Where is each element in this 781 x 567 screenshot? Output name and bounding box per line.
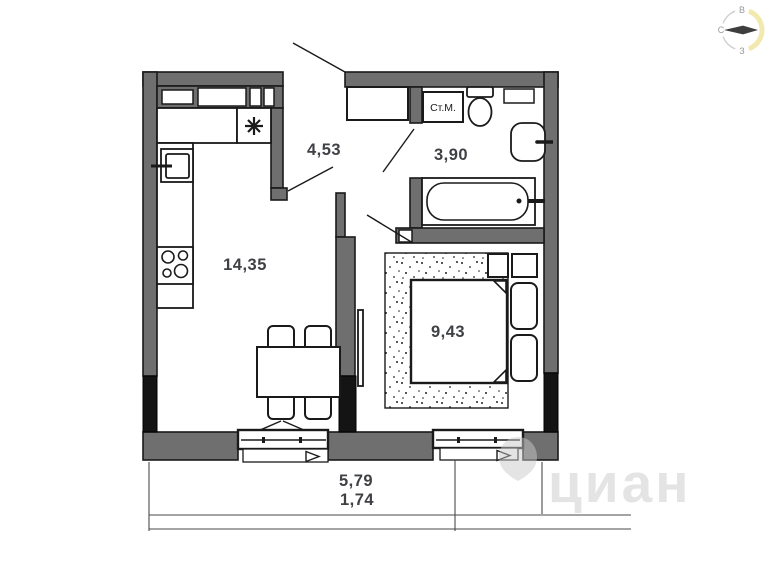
- wall-left: [143, 72, 157, 376]
- compass-letter-top: В: [739, 5, 745, 15]
- compass-needle-icon: [724, 26, 758, 35]
- wall-top-right: [345, 72, 558, 87]
- washing-machine-label: Ст.М.: [430, 102, 456, 114]
- bathroom-door-swing: [383, 129, 414, 172]
- wall-bath-bottom: [396, 228, 544, 243]
- wall-niche: [504, 89, 534, 103]
- open-door-leaf: [358, 310, 363, 386]
- living-window: [238, 421, 328, 462]
- wall-bottom-1: [143, 432, 238, 460]
- floorplan-svg: В С З: [0, 0, 781, 567]
- window-mullion: [494, 437, 497, 443]
- wall-top-left: [143, 72, 283, 86]
- window-mullion: [299, 437, 302, 443]
- wall-left-dark-section: [143, 376, 157, 432]
- nightstand: [488, 254, 508, 277]
- tub-drain-icon: [517, 199, 522, 204]
- wall-niche: [162, 90, 193, 104]
- wall-kitchen-hall-stub: [271, 188, 287, 200]
- dining-table: [257, 347, 340, 397]
- toilet: [467, 87, 493, 126]
- window-mullion: [262, 437, 265, 443]
- dimension-secondary: 1,74: [340, 491, 374, 509]
- wall-right: [544, 72, 558, 373]
- room-area-hallway: 4,53: [307, 141, 341, 159]
- wall-bath-lower: [410, 178, 422, 228]
- floorplan-canvas: В С З: [0, 0, 781, 567]
- kitchen-counter-top: [157, 108, 237, 143]
- wall-partition-dark-section: [339, 376, 356, 432]
- washing-machine: Ст.М.: [423, 92, 463, 122]
- wall-kitchen-hall: [271, 108, 283, 188]
- watermark-pin-icon: [499, 437, 537, 481]
- dimension-width: 5,79: [339, 472, 373, 490]
- wall-niche: [198, 88, 246, 106]
- compass-letter-bottom: З: [739, 46, 744, 56]
- wall-niche: [250, 88, 261, 106]
- kitchen-door-swing: [288, 167, 333, 191]
- entrance-door-swing: [293, 43, 345, 72]
- compass: В С З: [714, 3, 762, 58]
- wall-bath-upper: [410, 87, 422, 123]
- pillow: [511, 283, 537, 329]
- watermark: циан: [499, 437, 691, 514]
- stove: [157, 247, 193, 284]
- dining-set: [257, 326, 340, 419]
- nightstand: [512, 254, 537, 277]
- compass-letter-left: С: [718, 25, 725, 35]
- wall-niche: [264, 88, 274, 106]
- room-area-kitchen-living: 14,35: [223, 256, 267, 274]
- room-area-bedroom: 9,43: [431, 323, 465, 341]
- watermark-text: циан: [548, 452, 691, 514]
- pillow: [511, 335, 537, 381]
- window-mullion: [457, 437, 460, 443]
- bathtub: [422, 178, 545, 225]
- wall-right-dark-section: [544, 373, 558, 432]
- wall-partition-upper: [336, 193, 345, 237]
- hallway-closet: [347, 87, 408, 120]
- wall-bottom-2: [328, 432, 433, 460]
- room-area-bathroom: 3,90: [434, 146, 468, 164]
